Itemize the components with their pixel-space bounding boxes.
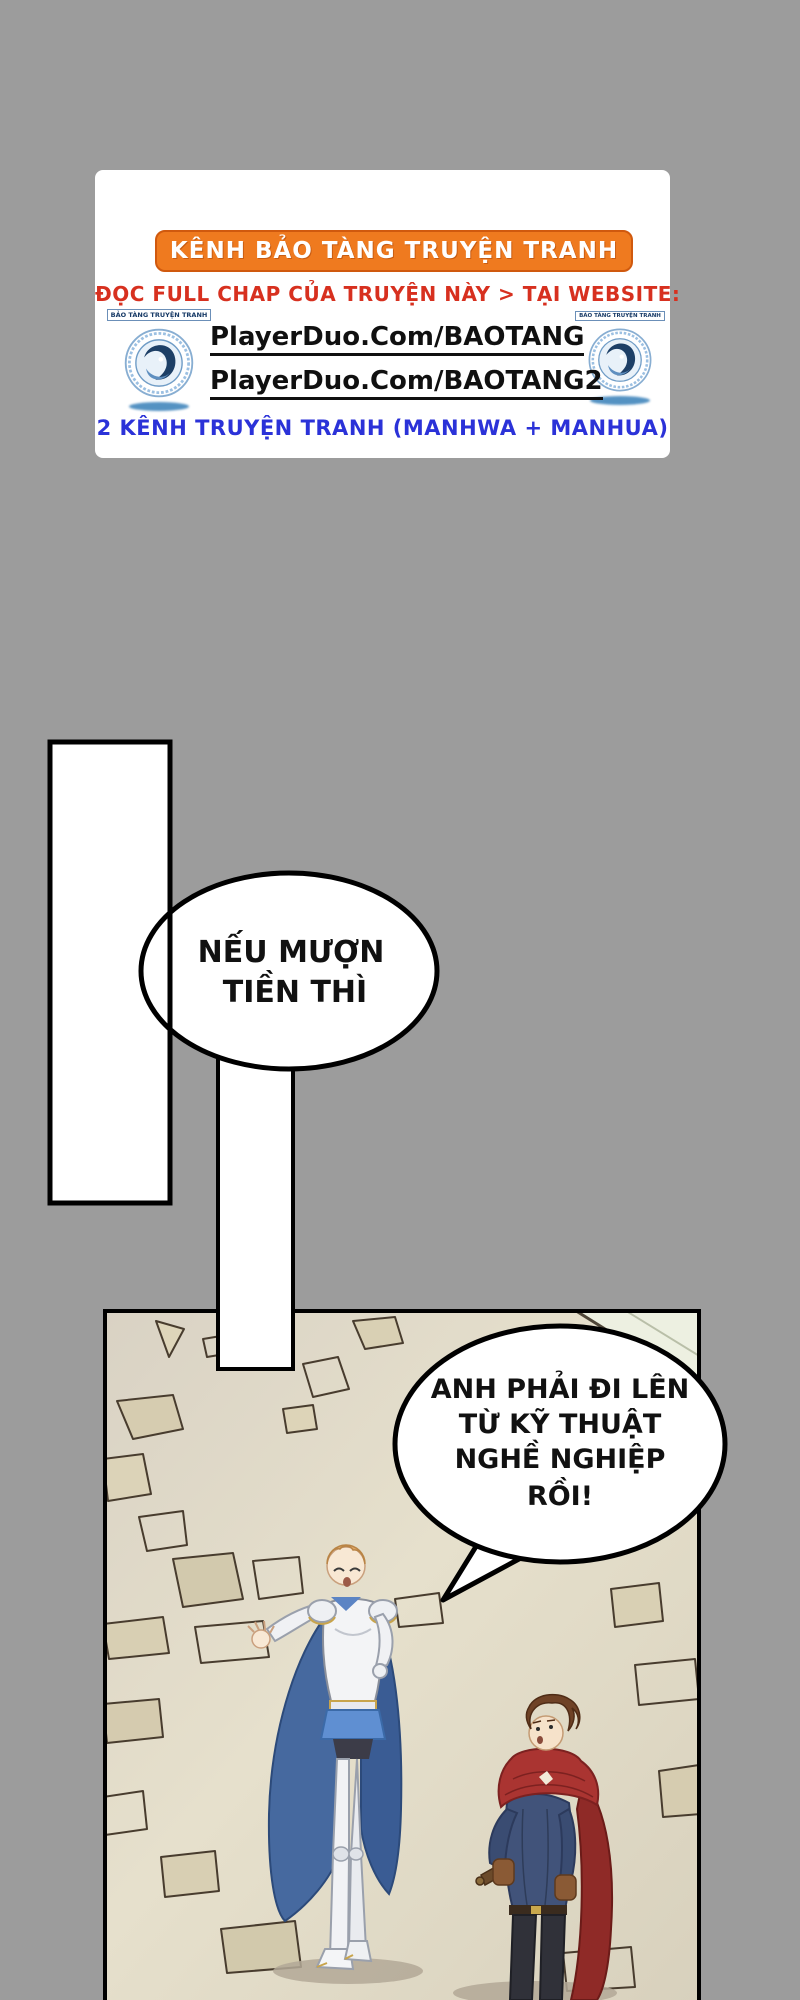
ad-subtitle: ĐỌC FULL CHAP CỦA TRUYỆN NÀY > TẠI WEBSI… [95,282,670,306]
playerduo-link-2[interactable]: PlayerDuo.Com/BAOTANG2 [210,366,555,396]
baotang-logo-icon [122,326,196,400]
speech-bubble-1 [141,873,437,1069]
bubble1-line1: NẾU MƯỢN [198,930,385,970]
logo-ribbon-label: BẢO TÀNG TRUYỆN TRANH [575,311,665,321]
ad-banner: KÊNH BẢO TÀNG TRUYỆN TRANH [155,230,633,272]
logo-ribbon-label: BẢO TÀNG TRUYỆN TRANH [107,309,212,321]
white-bar-1-outline [50,742,170,1203]
bubble1-line2: TIỀN THÌ [223,970,367,1010]
baotang-logo-left: BẢO TÀNG TRUYỆN TRANH [101,306,217,411]
comic-panel [103,1309,701,2000]
logo-shadow [129,402,189,411]
ad-footer: 2 KÊNH TRUYỆN TRANH (MANHWA + MANHUA) [95,416,670,440]
playerduo-link-1[interactable]: PlayerDuo.Com/BAOTANG [210,322,555,352]
white-bar-1 [50,742,170,1203]
panel-scene [103,1309,701,2000]
ad-header-card: KÊNH BẢO TÀNG TRUYỆN TRANH ĐỌC FULL CHAP… [95,170,670,458]
comic-page: { "page": { "background_color": "#9c9c9c… [0,0,800,2000]
